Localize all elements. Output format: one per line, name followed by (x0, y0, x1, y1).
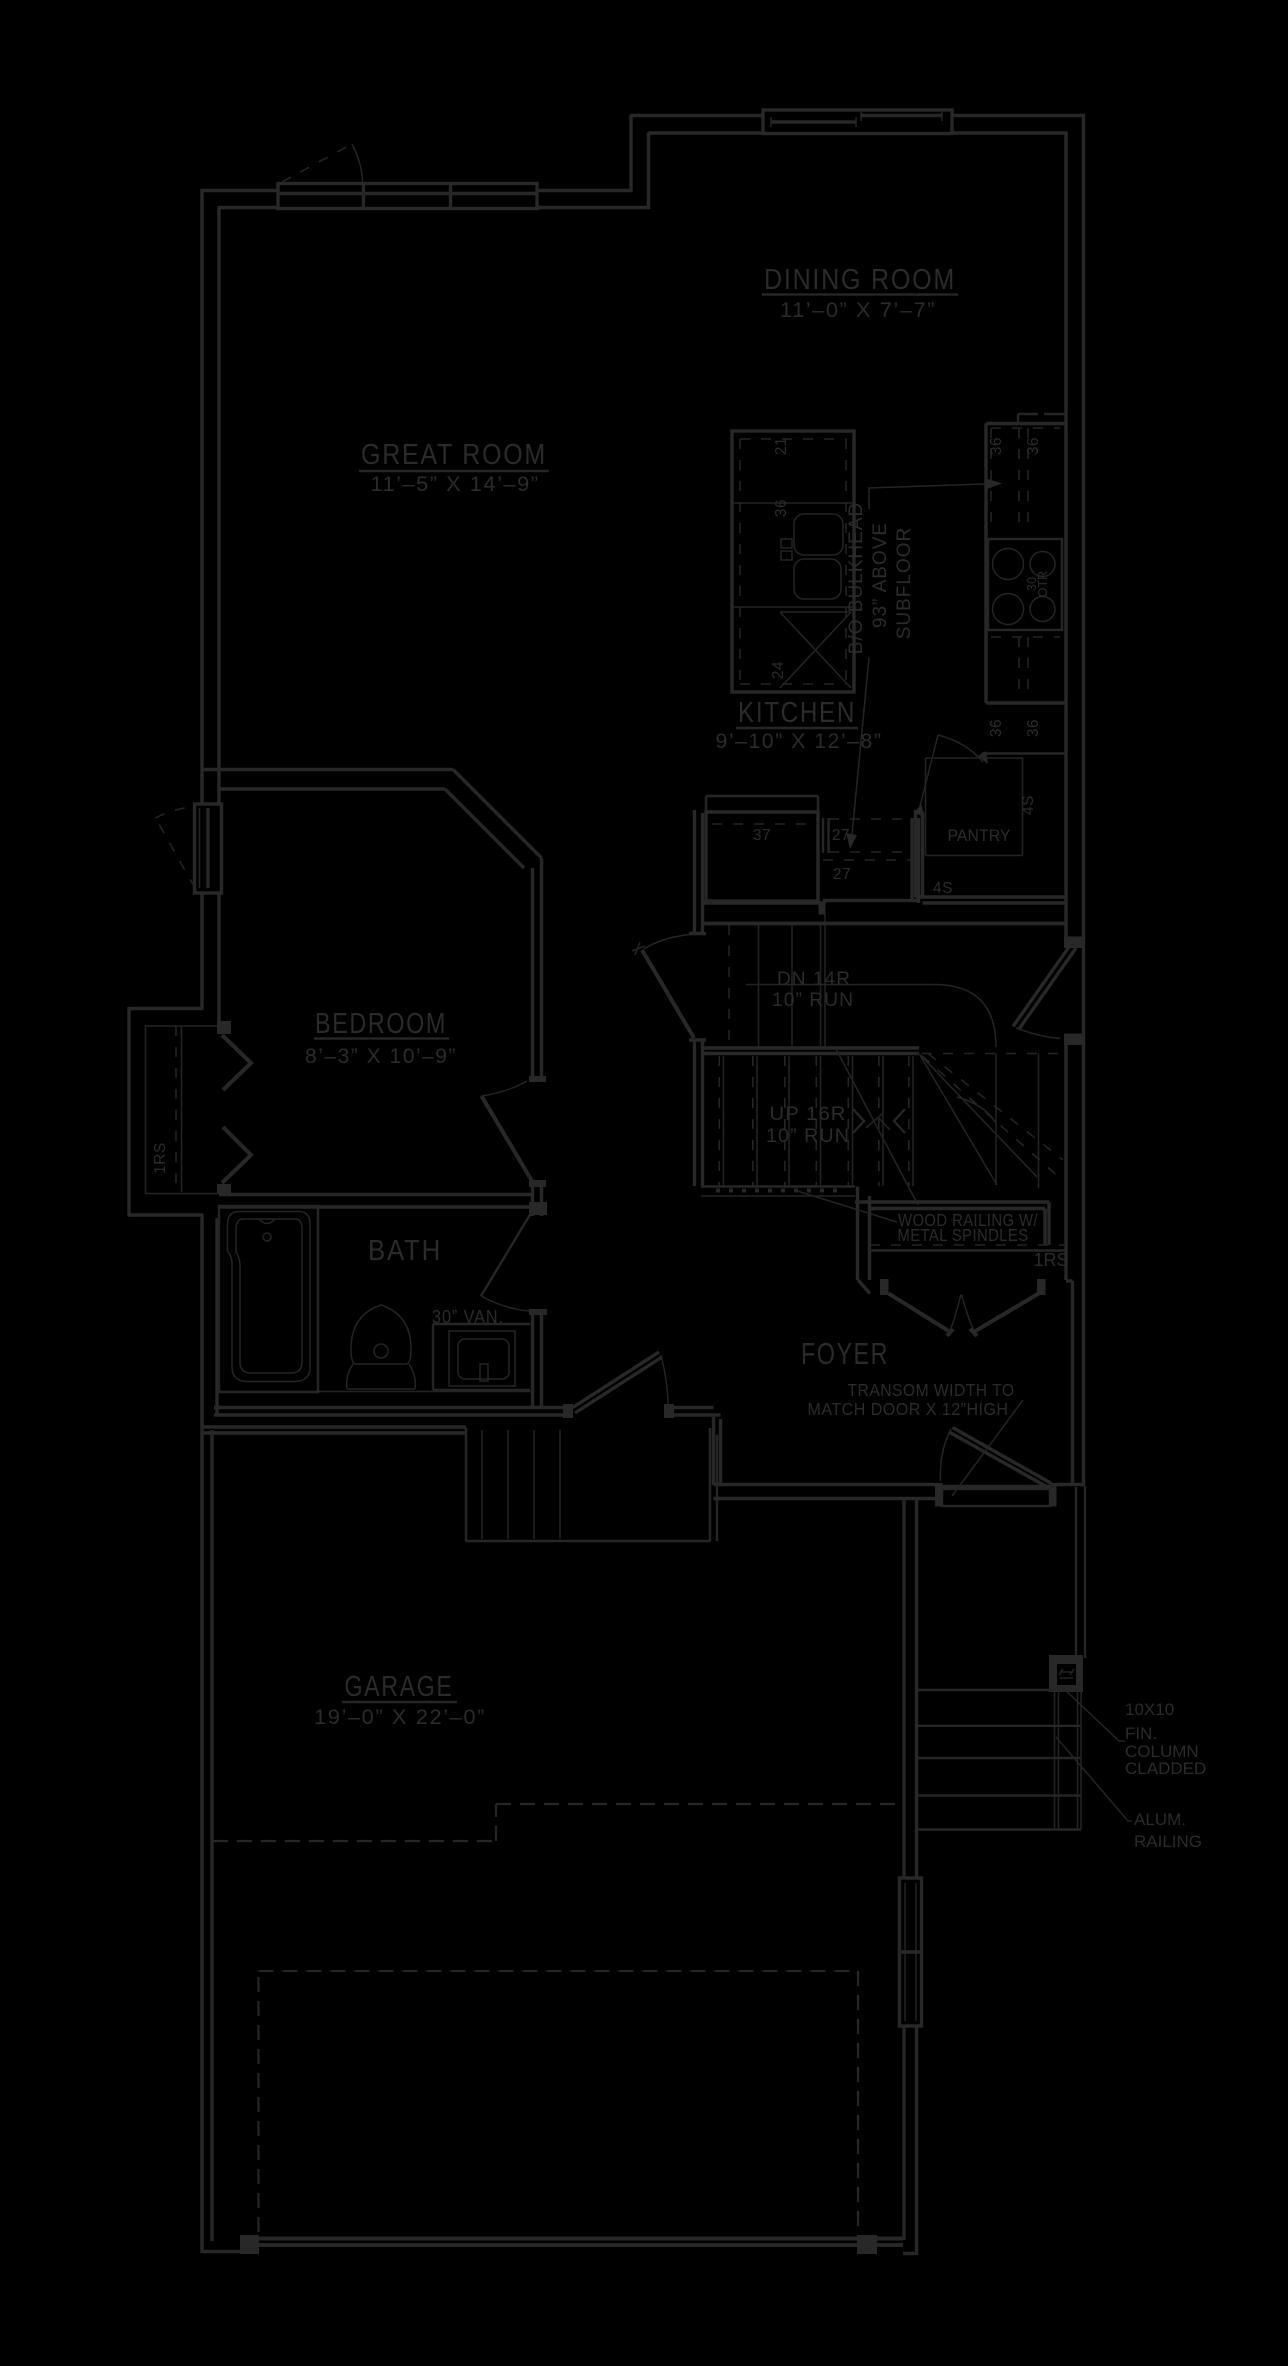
svg-text:9’–10” X 12’–8”: 9’–10” X 12’–8” (716, 730, 883, 753)
svg-text:36: 36 (988, 437, 1005, 455)
svg-text:1RS: 1RS (152, 1142, 169, 1174)
svg-text:37: 37 (753, 827, 771, 844)
svg-text:11’–0” X 7’–7”: 11’–0” X 7’–7” (780, 299, 936, 322)
svg-text:36: 36 (1025, 719, 1042, 737)
svg-text:10X10: 10X10 (1125, 1700, 1174, 1719)
svg-text:36: 36 (1025, 437, 1042, 455)
svg-text:93” ABOVE: 93” ABOVE (870, 522, 891, 628)
svg-text:21: 21 (773, 437, 790, 455)
svg-text:8’–3” X 10’–9”: 8’–3” X 10’–9” (305, 1045, 457, 1068)
svg-text:4S: 4S (933, 880, 953, 897)
svg-text:1RS: 1RS (1033, 1250, 1068, 1270)
svg-text:UP 16R: UP 16R (770, 1104, 847, 1125)
svg-text:MATCH DOOR X 12”HIGH: MATCH DOOR X 12”HIGH (808, 1399, 1009, 1419)
svg-text:METAL SPINDLES: METAL SPINDLES (898, 1225, 1029, 1245)
svg-text:30” VAN.: 30” VAN. (432, 1307, 504, 1327)
svg-text:TRANSOM WIDTH TO: TRANSOM WIDTH TO (848, 1380, 1015, 1400)
svg-text:27: 27 (832, 827, 850, 844)
svg-text:11’–5” X 14’–9”: 11’–5” X 14’–9” (371, 473, 540, 496)
svg-text:19’–0” X 22’–0”: 19’–0” X 22’–0” (314, 1706, 486, 1729)
svg-text:24: 24 (770, 661, 787, 679)
svg-text:FOYER: FOYER (801, 1336, 889, 1371)
svg-text:B/O BULKHEAD: B/O BULKHEAD (846, 502, 867, 654)
svg-text:PANTRY: PANTRY (948, 826, 1011, 845)
svg-text:KITCHEN: KITCHEN (738, 697, 856, 729)
svg-text:RAILING: RAILING (1134, 1832, 1202, 1851)
svg-text:BEDROOM: BEDROOM (315, 1008, 447, 1040)
svg-text:10” RUN: 10” RUN (766, 1126, 850, 1147)
svg-text:CLADDED: CLADDED (1125, 1759, 1206, 1778)
svg-text:4S: 4S (1020, 795, 1037, 815)
svg-text:OTR: OTR (1036, 571, 1050, 597)
svg-text:GREAT ROOM: GREAT ROOM (361, 439, 547, 471)
svg-text:36: 36 (988, 719, 1005, 737)
svg-text:SUBFLOOR: SUBFLOOR (894, 527, 915, 640)
svg-text:ALUM.: ALUM. (1134, 1810, 1186, 1829)
svg-text:DINING ROOM: DINING ROOM (764, 264, 956, 296)
svg-text:FIN.: FIN. (1125, 1724, 1157, 1743)
svg-text:36: 36 (773, 499, 790, 517)
svg-text:DN 14R: DN 14R (777, 969, 851, 990)
svg-text:GARAGE: GARAGE (345, 1671, 454, 1703)
svg-text:BATH: BATH (368, 1235, 442, 1267)
svg-text:27: 27 (833, 866, 851, 883)
svg-text:10” RUN: 10” RUN (772, 990, 854, 1011)
